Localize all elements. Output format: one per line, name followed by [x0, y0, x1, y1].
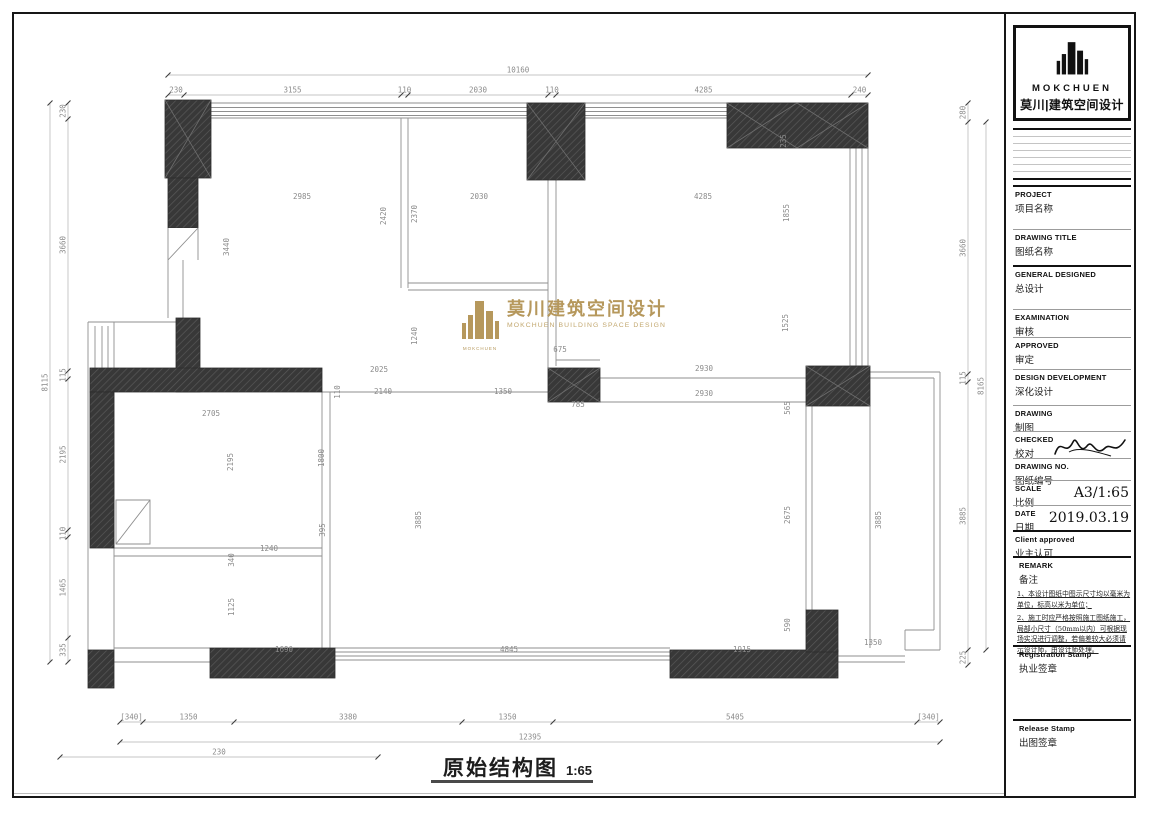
drawing-sheet: 1016023031551102030110428524081152303660… [0, 0, 1150, 813]
sheet-border [12, 12, 1136, 798]
